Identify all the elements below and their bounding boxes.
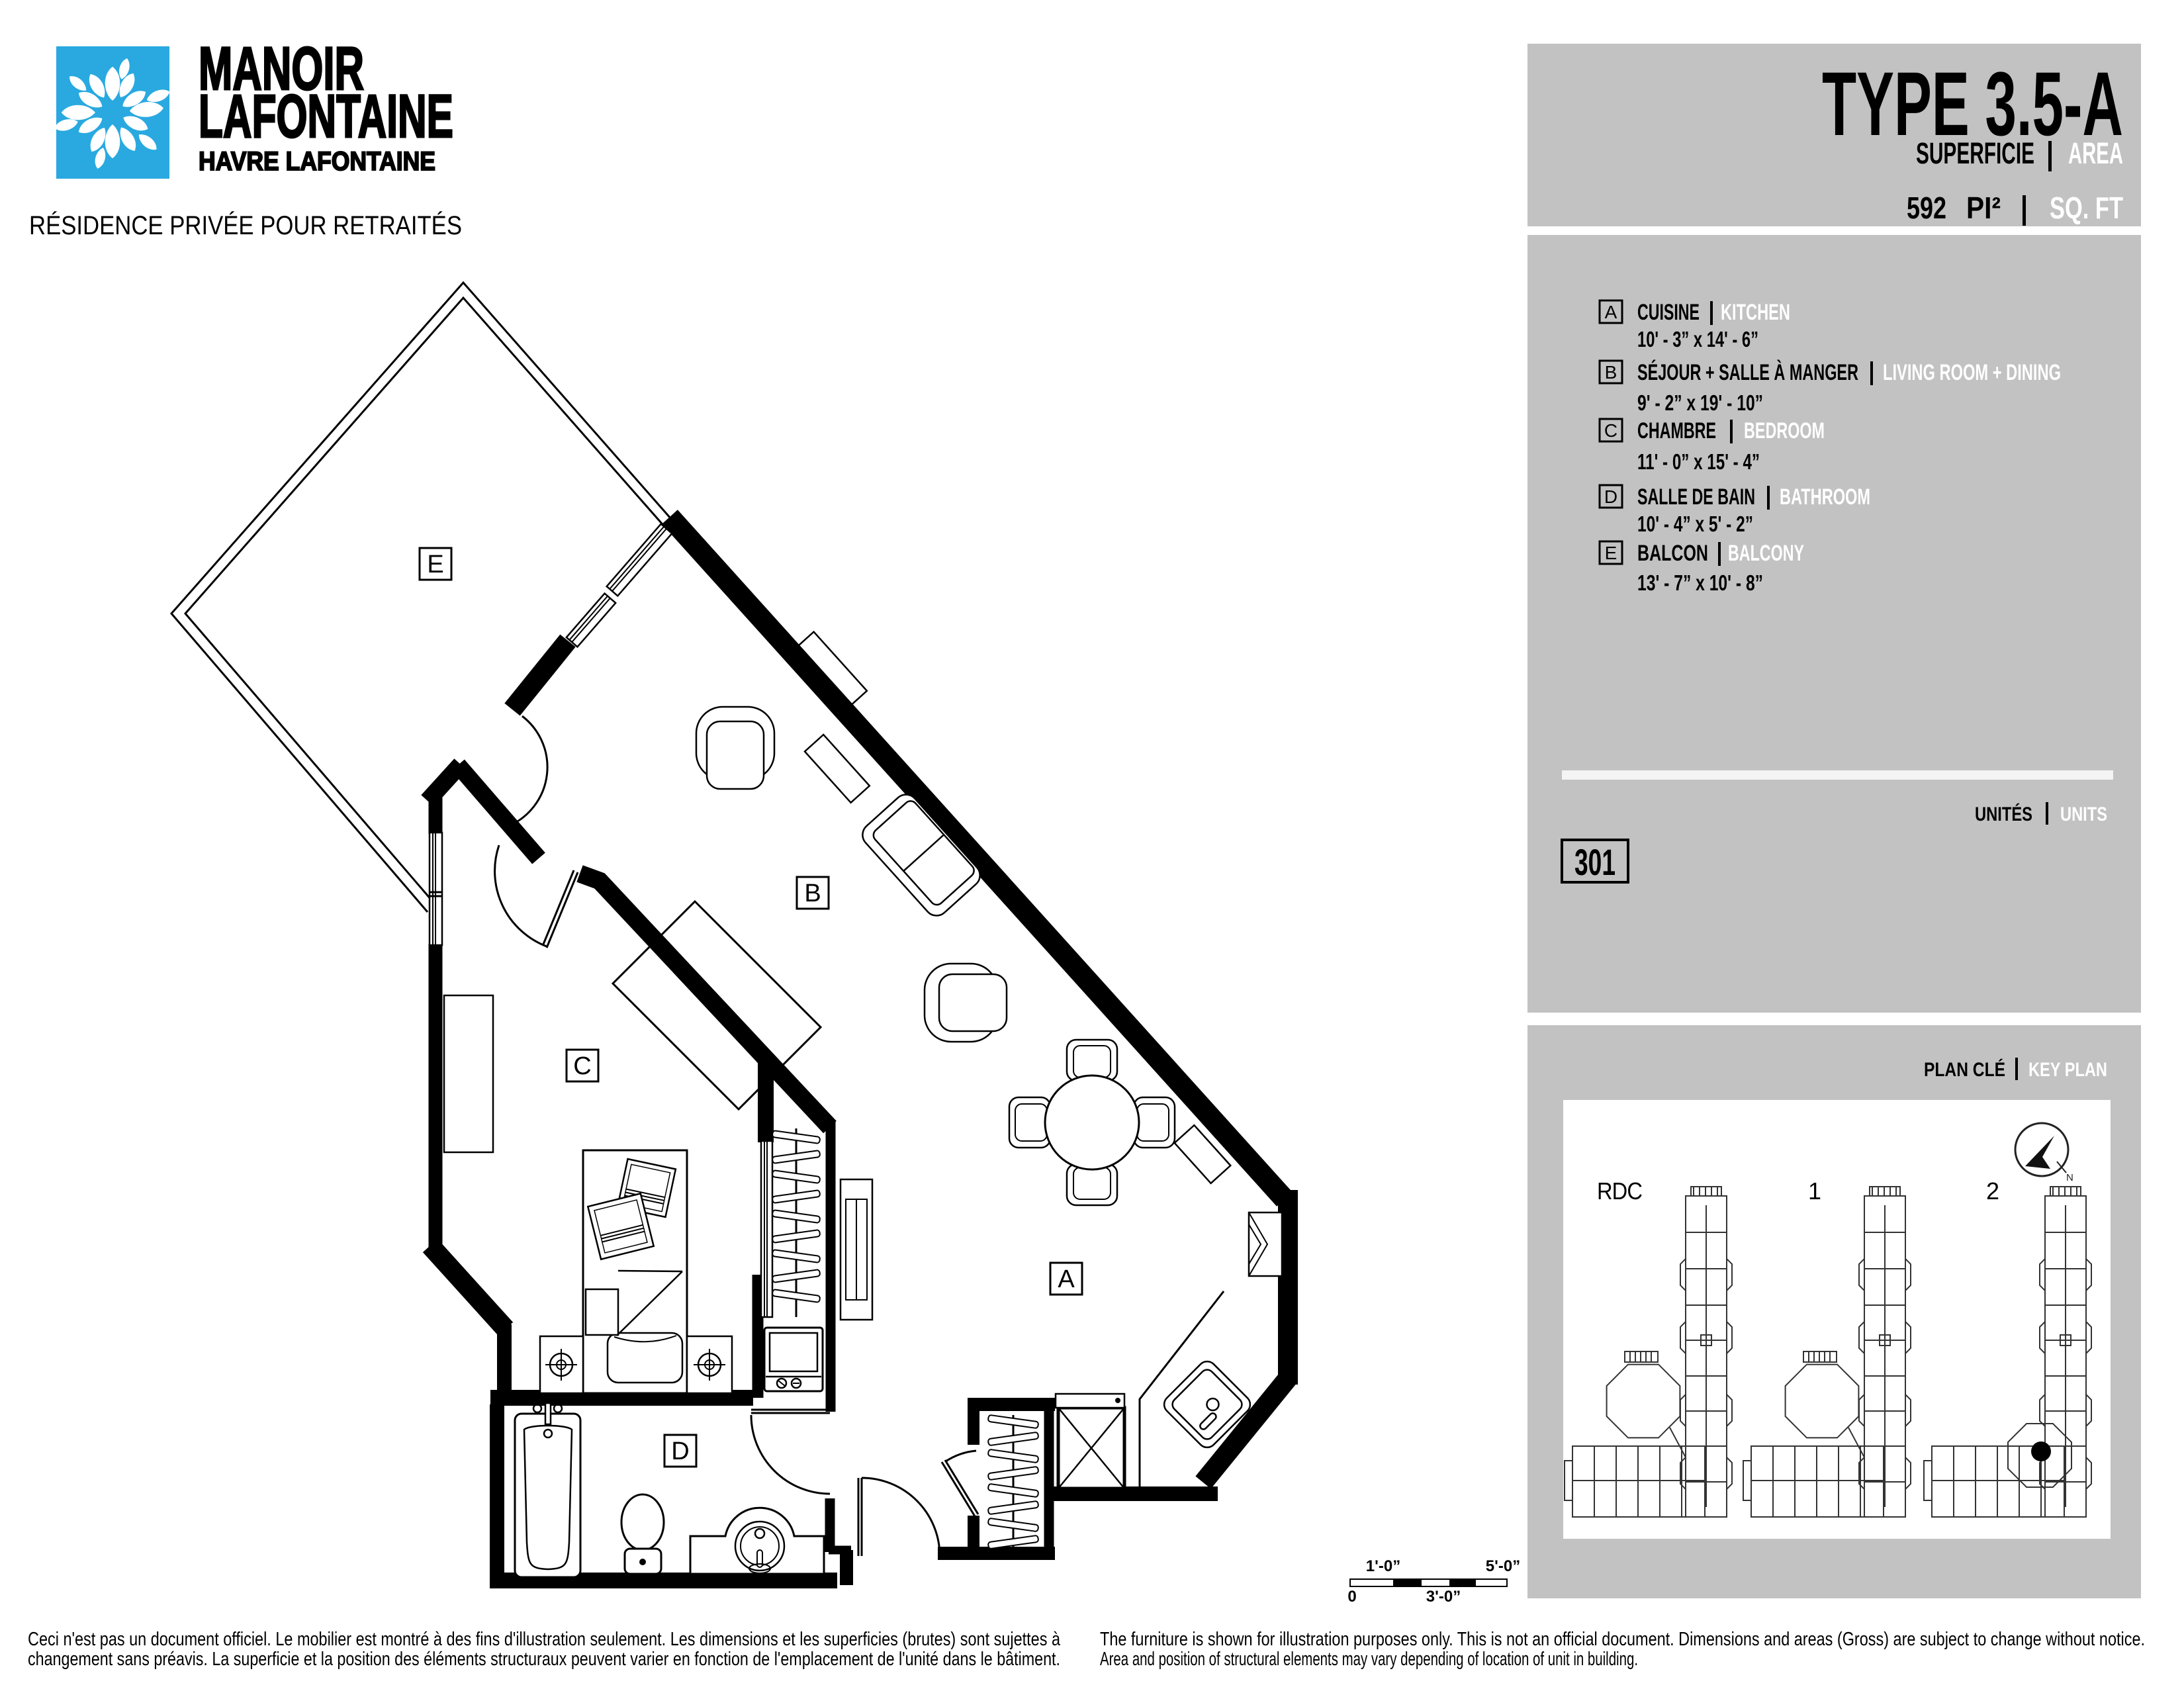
svg-text:13' - 7” x 10' - 8”: 13' - 7” x 10' - 8”: [1637, 571, 1763, 595]
svg-text:0: 0: [1347, 1588, 1356, 1606]
svg-text:C: C: [1604, 420, 1617, 441]
svg-text:HAVRE LAFONTAINE: HAVRE LAFONTAINE: [199, 147, 435, 176]
svg-text:CHAMBRE: CHAMBRE: [1637, 418, 1716, 443]
svg-text:5'-0”: 5'-0”: [1486, 1557, 1520, 1575]
svg-text:SALLE DE BAIN: SALLE DE BAIN: [1637, 484, 1755, 510]
svg-text:changement sans préavis. La su: changement sans préavis. La superficie e…: [28, 1649, 1060, 1670]
svg-text:9' - 2” x 19' - 10”: 9' - 2” x 19' - 10”: [1637, 390, 1763, 415]
svg-text:3'-0”: 3'-0”: [1426, 1588, 1461, 1606]
svg-text:D: D: [1604, 486, 1617, 507]
svg-text:CUISINE: CUISINE: [1637, 300, 1700, 325]
svg-text:10' - 3” x 14' - 6”: 10' - 3” x 14' - 6”: [1637, 327, 1758, 351]
svg-text:A: A: [1058, 1265, 1075, 1293]
svg-text:11' - 0” x 15' - 4”: 11' - 0” x 15' - 4”: [1637, 449, 1760, 474]
svg-text:UNITÉS: UNITÉS: [1975, 803, 2032, 825]
svg-text:B: B: [804, 880, 821, 907]
svg-text:Area and position of structura: Area and position of structural elements…: [1100, 1649, 1638, 1670]
svg-text:BALCON: BALCON: [1637, 541, 1708, 566]
svg-text:BEDROOM: BEDROOM: [1744, 418, 1825, 443]
svg-text:N: N: [2066, 1172, 2073, 1183]
svg-text:PLAN CLÉ: PLAN CLÉ: [1924, 1058, 2005, 1081]
svg-text:KITCHEN: KITCHEN: [1721, 300, 1790, 325]
svg-text:KEY PLAN: KEY PLAN: [2028, 1059, 2107, 1081]
svg-text:BALCONY: BALCONY: [1728, 541, 1804, 566]
svg-text:1: 1: [1808, 1177, 1821, 1205]
svg-text:A: A: [1605, 302, 1617, 322]
svg-text:B: B: [1605, 362, 1617, 383]
svg-text:RDC: RDC: [1597, 1177, 1642, 1205]
svg-text:E: E: [427, 551, 443, 578]
svg-text:301: 301: [1574, 841, 1615, 883]
svg-text:The furniture is shown for ill: The furniture is shown for illustration …: [1100, 1629, 2145, 1650]
svg-text:C: C: [573, 1052, 591, 1080]
svg-text:1'-0”: 1'-0”: [1366, 1557, 1400, 1575]
svg-text:PI²: PI²: [1966, 191, 2001, 225]
svg-text:D: D: [671, 1438, 689, 1465]
svg-text:LIVING ROOM + DINING: LIVING ROOM + DINING: [1883, 360, 2061, 385]
svg-text:2: 2: [1986, 1177, 1999, 1205]
svg-text:SUPERFICIE: SUPERFICIE: [1916, 136, 2034, 170]
svg-text:RÉSIDENCE PRIVÉE POUR RETRAITÉ: RÉSIDENCE PRIVÉE POUR RETRAITÉS: [29, 210, 462, 240]
svg-text:SQ. FT: SQ. FT: [2050, 191, 2123, 225]
svg-text:LAFONTAINE: LAFONTAINE: [199, 83, 453, 150]
svg-text:UNITS: UNITS: [2060, 803, 2107, 825]
svg-text:E: E: [1605, 543, 1617, 563]
svg-text:Ceci n'est pas un document off: Ceci n'est pas un document officiel. Le …: [28, 1629, 1061, 1650]
svg-text:BATHROOM: BATHROOM: [1780, 484, 1870, 510]
svg-text:10' - 4” x 5' - 2”: 10' - 4” x 5' - 2”: [1637, 512, 1753, 536]
svg-text:SÉJOUR + SALLE À MANGER: SÉJOUR + SALLE À MANGER: [1637, 360, 1858, 385]
svg-text:AREA: AREA: [2068, 136, 2123, 170]
svg-text:592: 592: [1907, 191, 1946, 225]
